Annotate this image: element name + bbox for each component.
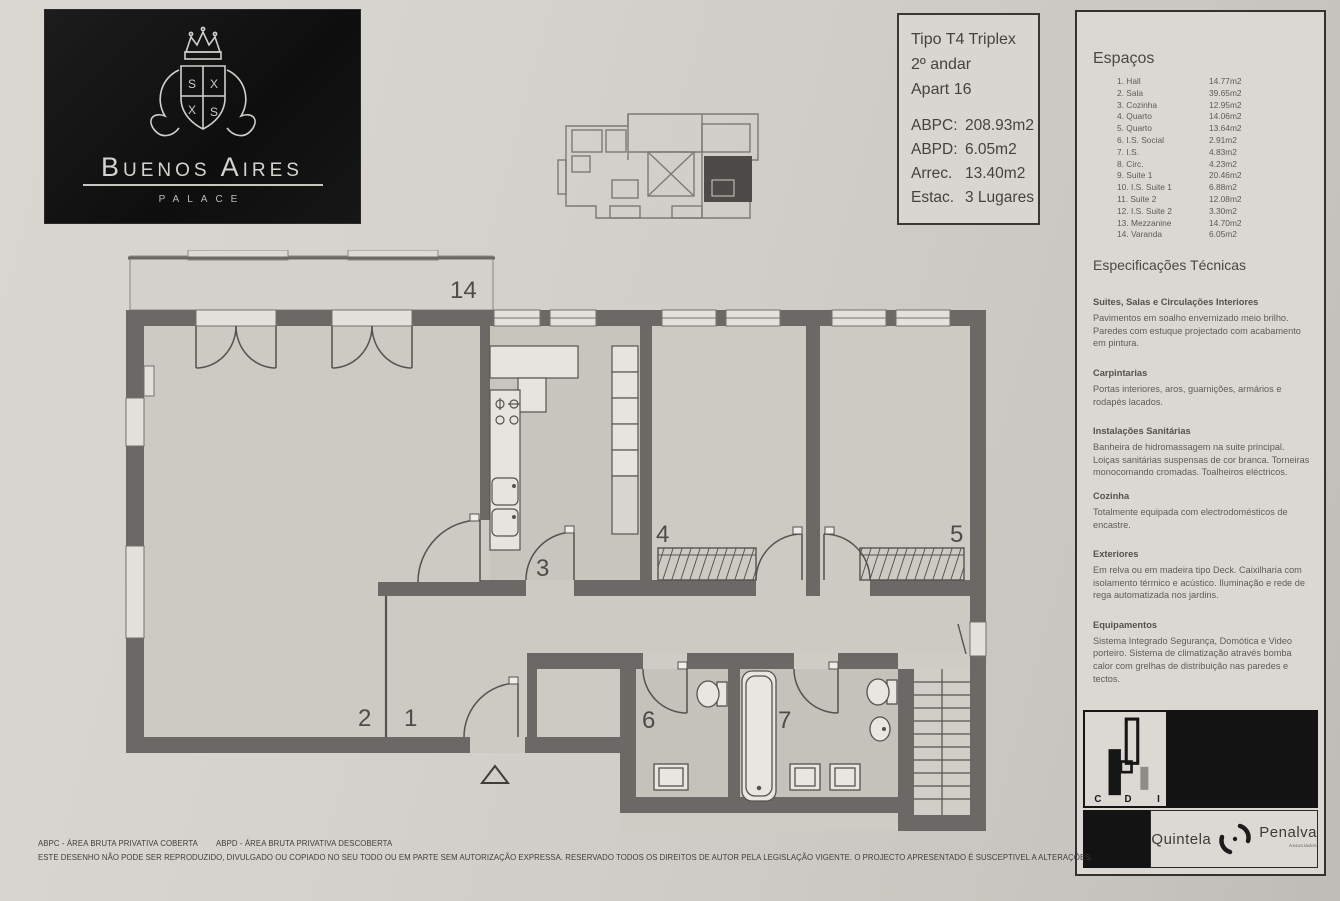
space-row: 2. Sala39.65m2 — [1117, 88, 1312, 100]
space-label: 10. I.S. Suite 1 — [1117, 182, 1209, 194]
room-label-hall: 1 — [404, 705, 417, 732]
space-label: 8. Circ. — [1117, 159, 1209, 171]
space-label: 1. Hall — [1117, 76, 1209, 88]
spec-section: Cozinha Totalmente equipada com electrod… — [1093, 491, 1312, 531]
key-plan-drawing — [552, 100, 764, 228]
space-row: 1. Hall14.77m2 — [1117, 76, 1312, 88]
svg-text:S: S — [210, 105, 218, 119]
spec-section: Carpintarias Portas interiores, aros, gu… — [1093, 368, 1312, 408]
metric-label: ABPD: — [911, 138, 965, 162]
space-label: 6. I.S. Social — [1117, 135, 1209, 147]
black-panel — [1083, 810, 1150, 868]
space-row: 10. I.S. Suite 16.88m2 — [1117, 182, 1312, 194]
bidet-icon — [870, 717, 890, 741]
sink-icon — [492, 509, 518, 536]
spec-body: Banheira de hidromassagem na suite princ… — [1093, 441, 1312, 479]
room-label-is6: 6 — [642, 707, 655, 734]
metric-row: Estac. 3 Lugares — [911, 186, 1038, 210]
footer-legends: ABPC - ÁREA BRUTA PRIVATIVA COBERTA ABPD… — [38, 839, 198, 848]
space-area: 14.70m2 — [1209, 218, 1242, 230]
room-label-quarto4: 4 — [656, 521, 669, 548]
varanda-floor — [130, 256, 493, 310]
space-area: 39.65m2 — [1209, 88, 1242, 100]
specs-panel: Espaços 1. Hall14.77m2 2. Sala39.65m2 3.… — [1075, 10, 1326, 876]
space-label: 11. Suite 2 — [1117, 194, 1209, 206]
space-label: 7. I.S. — [1117, 147, 1209, 159]
space-row: 13. Mezzanine14.70m2 — [1117, 218, 1312, 230]
metric-row: ABPD: 6.05m2 — [911, 138, 1038, 162]
floor-plan-drawing: 14 — [118, 250, 998, 836]
space-area: 4.83m2 — [1209, 147, 1237, 159]
metric-label: Arrec. — [911, 162, 965, 186]
spaces-list: 1. Hall14.77m2 2. Sala39.65m2 3. Cozinha… — [1117, 76, 1312, 241]
wardrobe-room5 — [860, 548, 964, 580]
spec-heading: Instalações Sanitárias — [1093, 426, 1312, 436]
room-label-is7: 7 — [778, 707, 791, 734]
cdi-letter-i: I — [1157, 794, 1160, 804]
metric-value: 6.05m2 — [965, 138, 1017, 162]
cdi-logo: C D I — [1083, 710, 1168, 808]
space-row: 7. I.S.4.83m2 — [1117, 147, 1312, 159]
cdi-letter-c: C — [1094, 794, 1101, 804]
space-label: 2. Sala — [1117, 88, 1209, 100]
mantling-left — [151, 70, 179, 136]
penalva-subtitle: Associados — [1289, 839, 1317, 852]
room-label-sala: 2 — [358, 705, 371, 732]
space-area: 4.23m2 — [1209, 159, 1237, 171]
cdi-logo-icon: C D I — [1085, 712, 1171, 804]
specs-title: Especificações Técnicas — [1093, 257, 1312, 273]
spec-body: Portas interiores, aros, guarnições, arm… — [1093, 383, 1312, 408]
space-label: 13. Mezzanine — [1117, 218, 1209, 230]
wardrobe-room4 — [658, 548, 756, 580]
entrance-marker-icon — [482, 766, 508, 783]
space-row: 9. Suite 120.46m2 — [1117, 170, 1312, 182]
space-row: 6. I.S. Social2.91m2 — [1117, 135, 1312, 147]
logo-subtitle: PALACE — [159, 194, 246, 205]
black-panel — [1168, 710, 1318, 808]
space-area: 13.64m2 — [1209, 123, 1242, 135]
metric-row: ABPC: 208.93m2 — [911, 114, 1038, 138]
spec-body: Pavimentos em soalho envernizado meio br… — [1093, 312, 1312, 350]
space-row: 11. Suite 212.08m2 — [1117, 194, 1312, 206]
spec-body: Sistema Integrado Segurança, Domótica e … — [1093, 635, 1312, 685]
spec-heading: Carpintarias — [1093, 368, 1312, 378]
highlighted-unit — [704, 156, 752, 202]
space-row: 12. I.S. Suite 23.30m2 — [1117, 206, 1312, 218]
toilet-icon — [867, 679, 889, 705]
spec-body: Totalmente equipada com electrodoméstico… — [1093, 506, 1312, 531]
penalva-text: Penalva Associados — [1259, 826, 1317, 852]
scanned-floorplan-sheet: SX XS Buenos Aires PALACE — [0, 0, 1340, 901]
logo-name: Buenos Aires — [101, 152, 303, 182]
space-row: 5. Quarto13.64m2 — [1117, 123, 1312, 135]
svg-text:X: X — [210, 77, 218, 91]
spec-section: Suites, Salas e Circulações Interiores P… — [1093, 297, 1312, 350]
space-area: 3.30m2 — [1209, 206, 1237, 218]
space-label: 5. Quarto — [1117, 123, 1209, 135]
space-label: 4. Quarto — [1117, 111, 1209, 123]
apartment-number: Apart 16 — [911, 77, 1038, 102]
area-metrics: ABPC: 208.93m2 ABPD: 6.05m2 Arrec. 13.40… — [911, 114, 1038, 210]
metric-value: 208.93m2 — [965, 114, 1034, 138]
room-label-cozinha: 3 — [536, 555, 549, 582]
spec-heading: Cozinha — [1093, 491, 1312, 501]
space-area: 14.06m2 — [1209, 111, 1242, 123]
floor-plan: 14 — [118, 250, 998, 841]
space-label: 9. Suite 1 — [1117, 170, 1209, 182]
bathtub-icon — [742, 671, 776, 801]
footer-disclaimer: ESTE DESENHO NÃO PODE SER REPRODUZIDO, D… — [38, 853, 1093, 862]
metric-row: Arrec. 13.40m2 — [911, 162, 1038, 186]
spec-section: Instalações Sanitárias Banheira de hidro… — [1093, 426, 1312, 479]
key-plan — [552, 100, 764, 233]
spec-section: Exteriores Em relva ou em madeira tipo D… — [1093, 549, 1312, 602]
sink-icon — [492, 478, 518, 505]
cdi-letter-d: D — [1124, 794, 1131, 804]
space-area: 6.05m2 — [1209, 229, 1237, 241]
mantling-right — [227, 70, 255, 136]
svg-text:X: X — [188, 103, 196, 117]
space-area: 20.46m2 — [1209, 170, 1242, 182]
metric-value: 13.40m2 — [965, 162, 1025, 186]
space-area: 12.08m2 — [1209, 194, 1242, 206]
space-area: 2.91m2 — [1209, 135, 1237, 147]
legend-abpc: ABPC - ÁREA BRUTA PRIVATIVA COBERTA — [38, 839, 198, 848]
spec-heading: Suites, Salas e Circulações Interiores — [1093, 297, 1312, 307]
kitchen-counter-top — [490, 346, 578, 378]
space-area: 14.77m2 — [1209, 76, 1242, 88]
space-label: 12. I.S. Suite 2 — [1117, 206, 1209, 218]
metric-label: Estac. — [911, 186, 965, 210]
quintela-penalva-swirl-icon — [1218, 822, 1252, 856]
spec-section: Equipamentos Sistema Integrado Segurança… — [1093, 620, 1312, 685]
spec-heading: Exteriores — [1093, 549, 1312, 559]
room-label-quarto5: 5 — [950, 521, 963, 548]
room-label-varanda: 14 — [450, 277, 477, 304]
quintela-text: Quintela — [1151, 831, 1211, 848]
space-row: 8. Circ.4.23m2 — [1117, 159, 1312, 171]
space-area: 12.95m2 — [1209, 100, 1242, 112]
spaces-title: Espaços — [1093, 50, 1312, 68]
apartment-floor: 2º andar — [911, 52, 1038, 77]
spec-heading: Equipamentos — [1093, 620, 1312, 630]
apartment-type: Tipo T4 Triplex — [911, 27, 1038, 52]
penalva-word: Penalva — [1259, 826, 1317, 839]
metric-label: ABPC: — [911, 114, 965, 138]
space-row: 14. Varanda6.05m2 — [1117, 229, 1312, 241]
buenos-aires-logo: SX XS Buenos Aires PALACE — [45, 10, 360, 223]
metric-value: 3 Lugares — [965, 186, 1034, 210]
space-row: 3. Cozinha12.95m2 — [1117, 100, 1312, 112]
space-label: 14. Varanda — [1117, 229, 1209, 241]
apartment-info-box: Tipo T4 Triplex 2º andar Apart 16 ABPC: … — [897, 13, 1040, 225]
space-row: 4. Quarto14.06m2 — [1117, 111, 1312, 123]
toilet-icon — [697, 681, 719, 707]
svg-text:S: S — [188, 77, 196, 91]
brand-logos: C D I Quintela — [1083, 710, 1318, 868]
spec-body: Em relva ou em madeira tipo Deck. Caixil… — [1093, 564, 1312, 602]
crest-emblem-icon: SX XS Buenos Aires PALACE — [45, 10, 360, 223]
quintela-penalva-logo: Quintela Penalva Associados — [1150, 810, 1318, 868]
space-area: 6.88m2 — [1209, 182, 1237, 194]
legend-abpd: ABPD - ÁREA BRUTA PRIVATIVA DESCOBERTA — [216, 839, 392, 848]
space-label: 3. Cozinha — [1117, 100, 1209, 112]
